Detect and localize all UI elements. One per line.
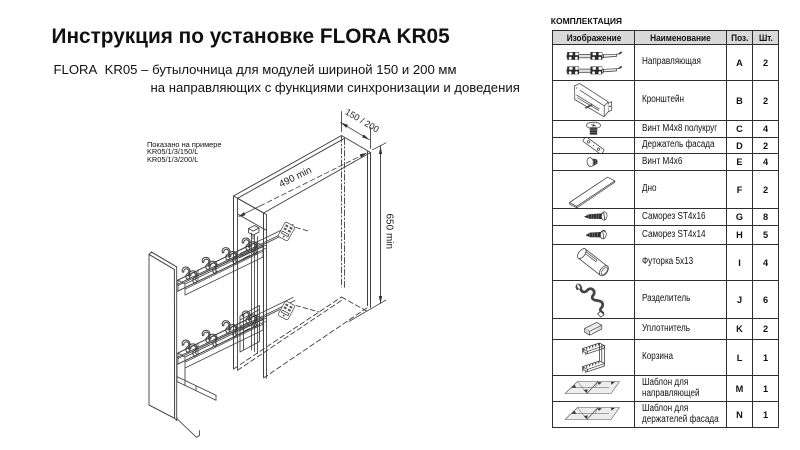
- svg-text:650 min: 650 min: [384, 214, 395, 250]
- svg-text:150 / 200: 150 / 200: [343, 107, 380, 135]
